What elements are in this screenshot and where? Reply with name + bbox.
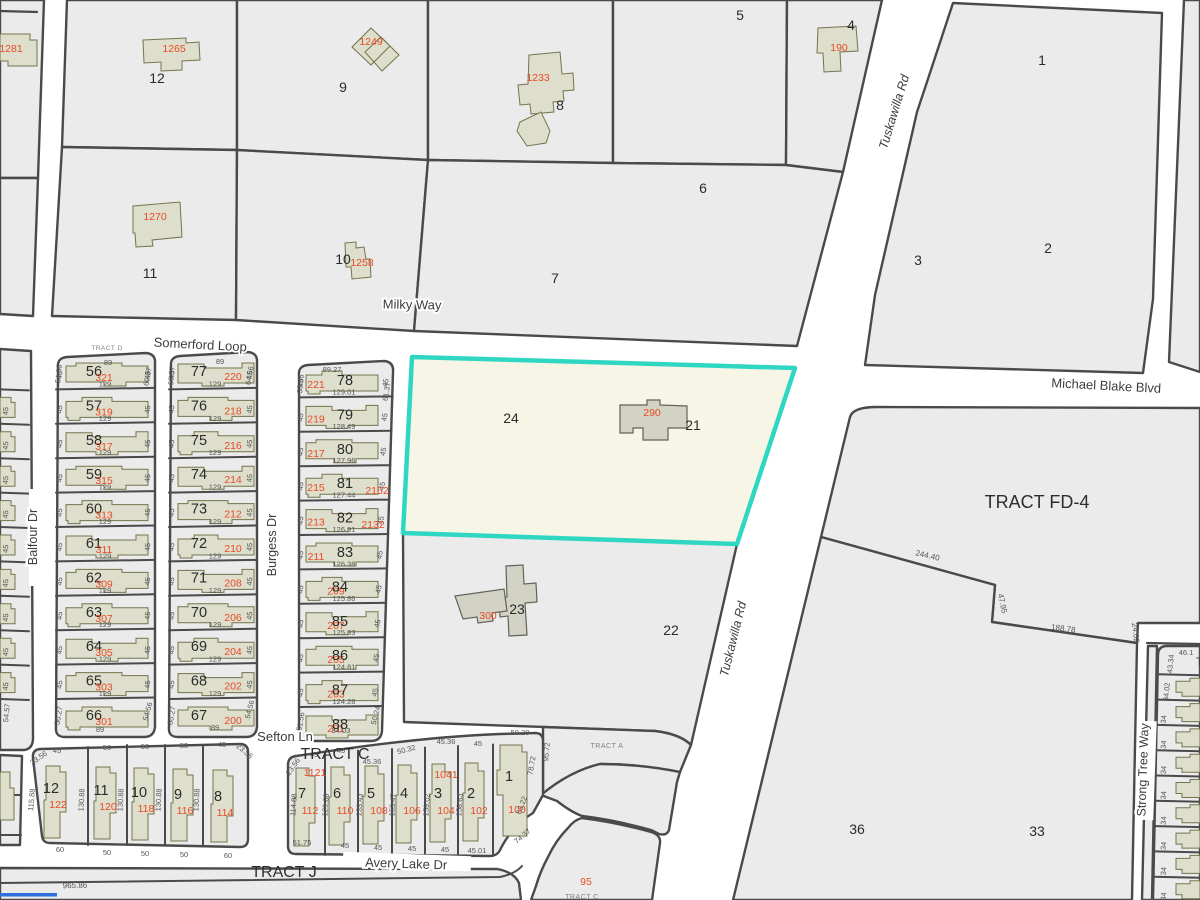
svg-text:45: 45 [296,482,306,491]
svg-text:89: 89 [211,723,219,732]
svg-text:129: 129 [209,586,222,595]
svg-text:45: 45 [167,474,177,483]
svg-text:73: 73 [191,502,207,518]
svg-text:Sefton Ln: Sefton Ln [257,729,313,744]
svg-text:34: 34 [1159,816,1169,825]
svg-text:34: 34 [1159,867,1169,876]
svg-text:45: 45 [1,613,11,622]
svg-text:45: 45 [55,508,65,517]
svg-text:217: 217 [307,448,325,460]
svg-text:129: 129 [209,620,222,629]
svg-text:45: 45 [245,577,255,586]
svg-text:2: 2 [1044,240,1052,256]
svg-text:45: 45 [143,577,153,586]
svg-text:129: 129 [99,689,112,698]
svg-text:77: 77 [191,364,207,380]
svg-text:45: 45 [245,474,255,483]
svg-text:221: 221 [307,379,325,391]
svg-text:45: 45 [167,542,177,551]
svg-text:1041: 1041 [434,769,458,781]
svg-text:45: 45 [53,746,61,755]
svg-text:8: 8 [556,97,564,113]
svg-text:Avery Lake Dr: Avery Lake Dr [365,855,448,873]
svg-text:34: 34 [1159,715,1169,724]
svg-text:214: 214 [224,474,242,486]
svg-text:50: 50 [180,741,188,750]
svg-text:4: 4 [400,786,408,802]
svg-text:158.63: 158.63 [454,793,465,817]
svg-text:45: 45 [1,510,11,519]
svg-text:45: 45 [1,682,11,691]
svg-text:1258: 1258 [350,257,374,269]
svg-text:22: 22 [663,622,679,638]
svg-text:7: 7 [551,270,559,286]
svg-text:24: 24 [503,410,519,426]
svg-text:9: 9 [339,79,347,95]
svg-text:55.66: 55.66 [295,374,306,393]
svg-text:129: 129 [99,414,112,423]
svg-text:45: 45 [1,544,11,553]
svg-text:129: 129 [99,483,112,492]
svg-text:50: 50 [141,742,149,751]
svg-text:208: 208 [224,577,242,589]
svg-text:TRACT A: TRACT A [591,743,624,750]
svg-text:Milky Way: Milky Way [383,296,442,312]
svg-text:36: 36 [849,821,865,837]
svg-text:45: 45 [167,646,177,655]
svg-text:45: 45 [245,611,255,620]
svg-text:204: 204 [224,646,242,658]
svg-text:45: 45 [245,680,255,689]
svg-text:45: 45 [143,611,153,620]
svg-text:45: 45 [296,447,306,456]
svg-text:45: 45 [474,739,482,748]
svg-text:129: 129 [209,551,222,560]
svg-text:84.03: 84.03 [332,726,351,735]
svg-text:89: 89 [216,357,224,366]
svg-text:112: 112 [302,805,319,817]
svg-text:110: 110 [337,805,354,817]
svg-text:45: 45 [1,407,11,416]
svg-text:60: 60 [224,851,232,860]
svg-text:45: 45 [1,647,11,656]
svg-text:21: 21 [685,417,701,433]
svg-text:11: 11 [143,265,158,281]
svg-text:200: 200 [224,715,242,727]
svg-text:50: 50 [103,848,111,857]
svg-text:TRACT C: TRACT C [565,894,599,900]
svg-text:45: 45 [296,619,306,628]
svg-text:45: 45 [143,508,153,517]
svg-text:219: 219 [307,413,325,425]
svg-text:211: 211 [308,551,325,563]
svg-text:130.88: 130.88 [153,788,163,811]
svg-text:6: 6 [333,786,341,802]
svg-text:45: 45 [55,474,65,483]
svg-text:190: 190 [830,42,848,54]
svg-text:5: 5 [736,7,744,23]
svg-text:34: 34 [1159,791,1169,800]
svg-text:45: 45 [408,844,416,853]
svg-text:45: 45 [378,447,388,457]
svg-text:89: 89 [104,358,112,367]
svg-text:129: 129 [99,517,112,526]
svg-text:290: 290 [643,407,661,419]
svg-text:45: 45 [370,687,380,697]
svg-text:45: 45 [55,439,65,448]
svg-text:106: 106 [403,805,421,817]
svg-text:45: 45 [55,611,65,620]
svg-text:129: 129 [99,620,112,629]
svg-text:45: 45 [373,584,383,594]
svg-text:34: 34 [1159,841,1169,850]
svg-text:50: 50 [141,849,149,858]
svg-text:300: 300 [479,610,497,622]
svg-text:45: 45 [167,577,177,586]
svg-text:95: 95 [580,876,592,888]
svg-text:45: 45 [55,542,65,551]
svg-text:34: 34 [1159,892,1169,900]
svg-text:114: 114 [217,807,234,819]
svg-text:45: 45 [143,405,153,414]
svg-text:130.88: 130.88 [115,788,125,811]
svg-text:TRACT FD-4: TRACT FD-4 [985,492,1090,512]
svg-text:218: 218 [224,405,242,417]
svg-text:11: 11 [93,783,108,799]
svg-text:10: 10 [131,785,147,801]
svg-text:60.37: 60.37 [166,366,177,385]
svg-text:69: 69 [191,639,207,655]
svg-text:45: 45 [167,508,177,517]
svg-text:5: 5 [367,786,375,802]
svg-text:45: 45 [296,585,306,594]
svg-text:127.96: 127.96 [333,456,356,465]
svg-text:155.47: 155.47 [387,793,398,817]
svg-text:129: 129 [99,448,112,457]
svg-text:220: 220 [224,371,242,383]
svg-text:70: 70 [191,605,207,621]
svg-text:45: 45 [245,646,255,655]
svg-text:45: 45 [296,654,306,663]
svg-text:12: 12 [43,781,59,797]
svg-text:1: 1 [505,769,513,785]
svg-text:45.01: 45.01 [468,846,487,855]
svg-text:108: 108 [370,805,388,817]
svg-text:45: 45 [379,412,389,422]
svg-text:71: 71 [191,570,207,586]
svg-text:46.1: 46.1 [1179,648,1194,657]
svg-text:45: 45 [55,405,65,414]
svg-text:75: 75 [191,433,207,449]
svg-text:129: 129 [99,379,112,388]
svg-text:45: 45 [55,680,65,689]
svg-text:206: 206 [224,612,242,624]
svg-text:51.75: 51.75 [293,838,312,847]
svg-text:45: 45 [55,577,65,586]
svg-text:67: 67 [191,708,207,724]
svg-text:1: 1 [1038,52,1046,68]
svg-text:213: 213 [307,517,325,529]
svg-text:3: 3 [434,786,442,802]
svg-text:60: 60 [56,845,64,854]
svg-text:10: 10 [335,251,351,267]
svg-text:33: 33 [1029,823,1045,839]
svg-text:54.66: 54.66 [53,364,64,383]
svg-text:129: 129 [209,379,222,388]
svg-text:129.01: 129.01 [333,387,356,396]
svg-text:68: 68 [191,674,207,690]
svg-text:159.02: 159.02 [421,793,432,817]
svg-text:212: 212 [224,509,242,521]
svg-text:129: 129 [209,483,222,492]
svg-text:124.28: 124.28 [333,697,356,706]
svg-text:118: 118 [138,803,155,815]
svg-text:129.88: 129.88 [320,793,331,817]
svg-text:45: 45 [341,841,349,850]
svg-text:Balfour Dr: Balfour Dr [26,509,40,565]
svg-text:129: 129 [209,517,222,526]
svg-text:129: 129 [209,689,222,698]
svg-text:45: 45 [143,439,153,448]
svg-text:7: 7 [298,786,306,802]
svg-text:4: 4 [847,17,855,33]
svg-text:TRACT D: TRACT D [91,345,123,352]
svg-text:129: 129 [99,586,112,595]
svg-text:45: 45 [296,413,306,422]
svg-text:45: 45 [296,688,306,697]
svg-text:126.38: 126.38 [333,559,356,568]
svg-text:12: 12 [149,70,165,86]
svg-text:216: 216 [224,440,242,452]
svg-text:54.57: 54.57 [1,703,12,722]
svg-text:89: 89 [96,725,104,734]
svg-text:59.20: 59.20 [511,728,530,737]
svg-text:1233: 1233 [526,72,550,84]
svg-text:45: 45 [296,516,306,525]
svg-text:1249: 1249 [359,36,383,48]
svg-text:2152: 2152 [365,485,389,497]
svg-text:1265: 1265 [162,43,186,55]
svg-text:89.27: 89.27 [323,365,342,374]
svg-text:120: 120 [99,801,117,813]
svg-text:129: 129 [99,655,112,664]
svg-text:45: 45 [375,550,385,560]
svg-text:45: 45 [143,680,153,689]
svg-text:124.81: 124.81 [333,663,356,672]
svg-text:129: 129 [209,414,222,423]
svg-text:122: 122 [49,799,67,811]
svg-text:129: 129 [99,551,112,560]
svg-text:8: 8 [214,789,222,805]
svg-text:126.91: 126.91 [333,525,356,534]
svg-text:72: 72 [191,536,207,552]
svg-text:45: 45 [1,579,11,588]
svg-text:50: 50 [103,743,111,752]
svg-text:45: 45 [167,439,177,448]
svg-text:45: 45 [167,611,177,620]
svg-text:9: 9 [174,787,182,803]
svg-text:127.44: 127.44 [333,491,356,500]
svg-text:133.43: 133.43 [354,793,365,817]
svg-text:TRACT C: TRACT C [300,746,369,763]
svg-text:1121: 1121 [304,767,327,779]
svg-text:34: 34 [1159,765,1169,774]
svg-text:2: 2 [467,786,475,802]
svg-text:130.88: 130.88 [76,788,86,811]
svg-text:1281: 1281 [0,43,23,55]
svg-text:45: 45 [167,680,177,689]
svg-text:102: 102 [470,805,488,817]
svg-text:43.34: 43.34 [1165,654,1176,673]
svg-text:104: 104 [437,805,455,817]
svg-text:45: 45 [371,653,381,663]
svg-text:45: 45 [441,845,449,854]
svg-text:TR: TR [1196,656,1200,668]
svg-text:TRACT J: TRACT J [251,864,316,881]
svg-text:45: 45 [245,508,255,517]
svg-text:45: 45 [245,405,255,414]
svg-text:50: 50 [180,850,188,859]
svg-text:125.86: 125.86 [333,594,356,603]
svg-text:125.33: 125.33 [333,628,356,637]
svg-text:45: 45 [1,441,11,450]
svg-text:45: 45 [245,439,255,448]
svg-text:45: 45 [245,542,255,551]
svg-text:128.49: 128.49 [333,422,356,431]
svg-text:45: 45 [55,646,65,655]
svg-text:2132: 2132 [361,519,385,531]
svg-text:45: 45 [372,619,382,629]
svg-text:215: 215 [307,482,325,494]
svg-text:210: 210 [224,543,242,555]
svg-text:34: 34 [1159,740,1169,749]
svg-text:130.88: 130.88 [191,788,201,811]
svg-text:45: 45 [374,843,382,852]
svg-text:45.36: 45.36 [437,737,456,746]
svg-text:45: 45 [167,405,177,414]
svg-text:34.02: 34.02 [1161,682,1172,701]
svg-text:45: 45 [218,740,226,749]
svg-text:45: 45 [143,542,153,551]
svg-text:1270: 1270 [143,211,167,223]
svg-text:Burgess Dr: Burgess Dr [265,514,279,577]
svg-text:129: 129 [209,448,222,457]
svg-text:45: 45 [143,474,153,483]
svg-text:74: 74 [191,467,207,483]
svg-text:965.86: 965.86 [63,881,88,890]
svg-text:23: 23 [509,601,525,617]
svg-text:45: 45 [143,646,153,655]
svg-text:45: 45 [1,475,11,484]
svg-text:45: 45 [296,550,306,559]
svg-text:202: 202 [224,681,242,693]
svg-text:76: 76 [191,398,207,414]
svg-text:3: 3 [914,252,922,268]
svg-text:114.88: 114.88 [288,793,299,816]
svg-text:95.72: 95.72 [541,742,552,761]
svg-text:129: 129 [209,655,222,664]
svg-text:6: 6 [699,180,707,196]
